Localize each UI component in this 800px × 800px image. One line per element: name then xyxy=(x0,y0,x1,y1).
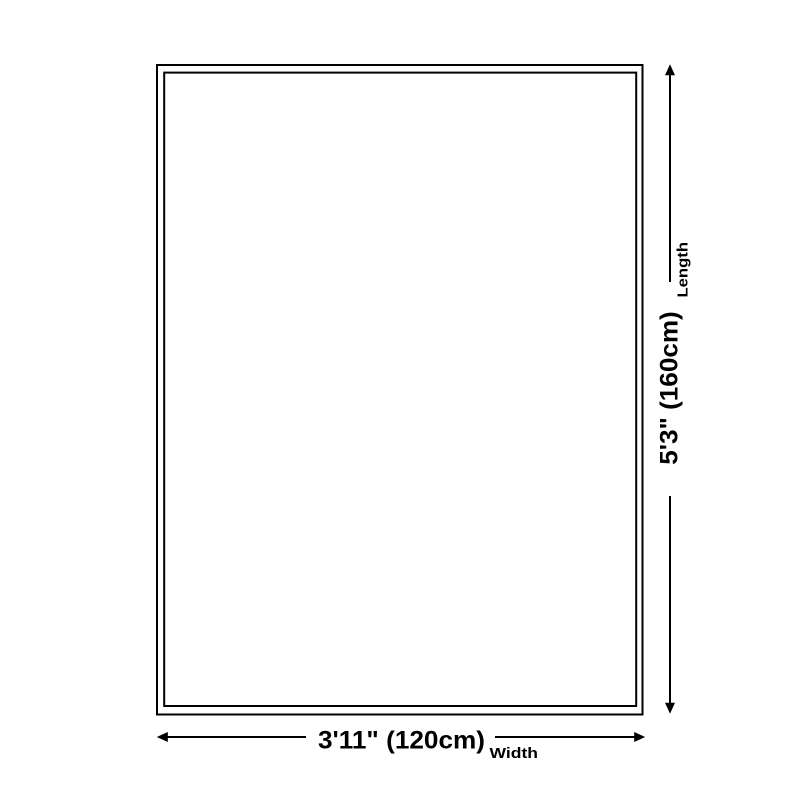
svg-text:Length: Length xyxy=(675,242,692,298)
svg-text:Width: Width xyxy=(490,745,539,762)
svg-text:3'11" (120cm): 3'11" (120cm) xyxy=(318,727,485,755)
svg-text:5'3" (160cm): 5'3" (160cm) xyxy=(656,311,684,465)
